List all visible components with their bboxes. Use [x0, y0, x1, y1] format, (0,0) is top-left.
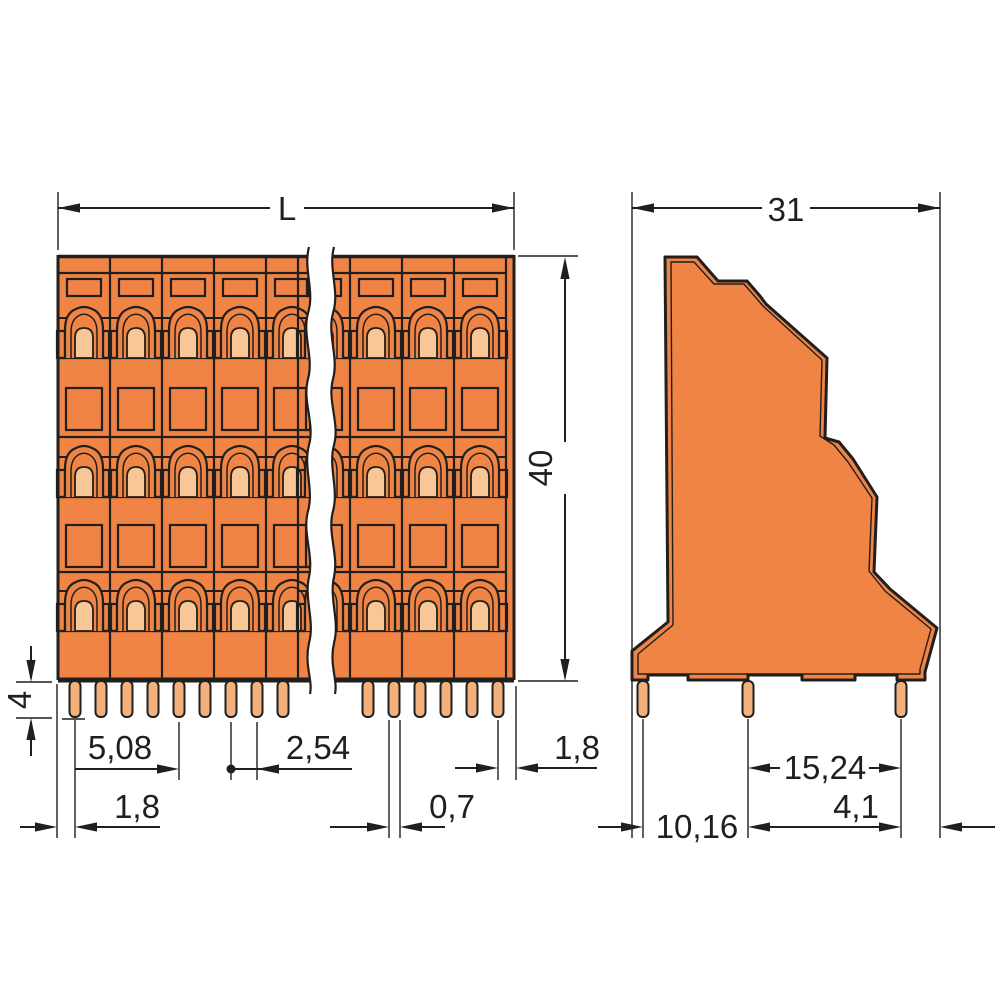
dim-label-depth: 31: [768, 191, 805, 228]
front-view-body: [57, 255, 514, 680]
dim-label-overall-length: L: [278, 190, 296, 227]
side-view-solder-pins: [638, 681, 907, 717]
dim-label-height: 40: [522, 450, 559, 487]
dim-label-pin-row-offset: 10,16: [656, 808, 739, 845]
dim-label-pin-to-edge: 4,1: [833, 788, 879, 825]
side-view: 31 15,24 10,16 4,1: [598, 191, 995, 845]
drawing-canvas: L 40 4 5,08 2,54 1,8 0,7 1,8 31 15,24 10…: [0, 0, 1000, 1000]
front-view-solder-pins: [70, 681, 504, 717]
dim-label-edge-to-pin-left: 1,8: [114, 788, 160, 825]
dim-label-pin-pitch: 2,54: [286, 729, 350, 766]
dim-label-edge-to-pin-right: 1,8: [554, 729, 600, 766]
side-view-body: [632, 257, 937, 680]
terminal-block-technical-drawing: L 40 4 5,08 2,54 1,8 0,7 1,8 31 15,24 10…: [0, 0, 1000, 1000]
dim-label-pin-length: 4: [1, 691, 38, 709]
break-line: [306, 247, 336, 694]
dim-label-pole-pitch: 5,08: [88, 729, 152, 766]
front-view: L 40 4 5,08 2,54 1,8 0,7 1,8: [1, 190, 600, 838]
dim-label-pin-row-spacing: 15,24: [784, 749, 867, 786]
dim-label-pin-width: 0,7: [429, 788, 475, 825]
side-profile-outline: [632, 257, 937, 680]
